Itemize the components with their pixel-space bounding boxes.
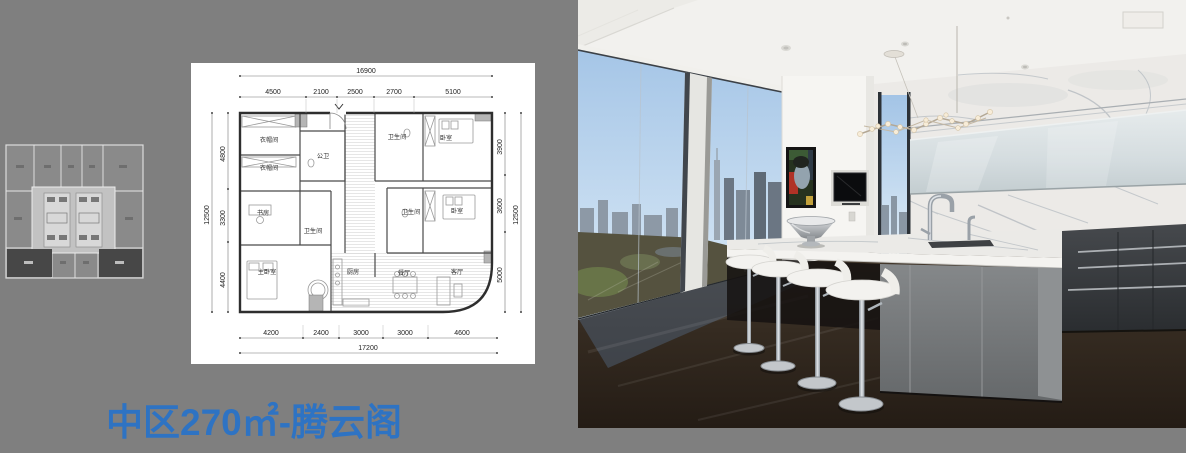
dim-left-seg: 4400	[220, 272, 227, 288]
dim-top-seg: 2700	[386, 89, 402, 96]
ceiling-vent	[1123, 12, 1163, 28]
entry-arrow-icon	[335, 104, 343, 109]
room-label: 卫生间	[304, 227, 323, 235]
room-label: 客厅	[451, 268, 463, 276]
dim-left-total: 12500	[204, 205, 211, 225]
room-label: 衣帽间	[260, 164, 279, 172]
dim-top-seg: 5100	[445, 89, 461, 96]
dim-bottom-seg: 4600	[454, 330, 470, 337]
wall-outlet	[849, 212, 855, 221]
room-label: 卫生间	[388, 133, 407, 141]
room-label: 卧室	[440, 134, 452, 142]
dim-top-seg: 2100	[313, 89, 329, 96]
base-cabinets	[1062, 224, 1186, 332]
narrow-window	[878, 92, 911, 256]
artwork-painting	[786, 147, 816, 208]
dim-bottom-seg: 3000	[353, 330, 369, 337]
dim-left-seg: 4800	[220, 146, 227, 162]
dim-bottom-total: 17200	[358, 345, 378, 352]
room-label: 卧室	[451, 207, 463, 215]
dim-bottom-seg: 4200	[263, 330, 279, 337]
dim-top-total: 16900	[356, 68, 376, 75]
kitchen-photo-illustration	[578, 0, 1186, 428]
dim-left-seg: 3300	[220, 210, 227, 226]
dim-bottom-seg: 3000	[397, 330, 413, 337]
room-label: 主卧室	[258, 268, 277, 276]
dim-right-seg: 3600	[497, 198, 504, 214]
floor-plan-panel: 16900 4500 2100 2500 2700 5100 12500 480…	[191, 63, 535, 364]
room-label: 厨房	[347, 268, 359, 276]
dim-top-seg: 2500	[347, 89, 363, 96]
interior-photo	[578, 0, 1186, 428]
key-plan-drawing	[4, 143, 145, 282]
dim-top-seg: 4500	[265, 89, 281, 96]
key-plan-thumbnail	[4, 143, 145, 282]
page-title: 中区270㎡-腾云阁	[106, 392, 402, 446]
entry-door	[330, 113, 346, 129]
dim-bottom-seg: 2400	[313, 330, 329, 337]
dim-right-seg: 3900	[497, 139, 504, 155]
slide: 16900 4500 2100 2500 2700 5100 12500 480…	[0, 0, 1186, 453]
room-label: 书房	[257, 209, 269, 217]
dim-right-total: 12500	[513, 205, 520, 225]
floor-plan-drawing: 16900 4500 2100 2500 2700 5100 12500 480…	[191, 63, 535, 364]
wall-tv	[831, 170, 869, 206]
room-label: 卫生间	[402, 208, 421, 216]
dim-right-seg: 5000	[497, 267, 504, 283]
room-label: 衣帽间	[260, 136, 279, 144]
room-label: 公卫	[317, 153, 329, 160]
room-label: 餐厅	[398, 269, 410, 277]
